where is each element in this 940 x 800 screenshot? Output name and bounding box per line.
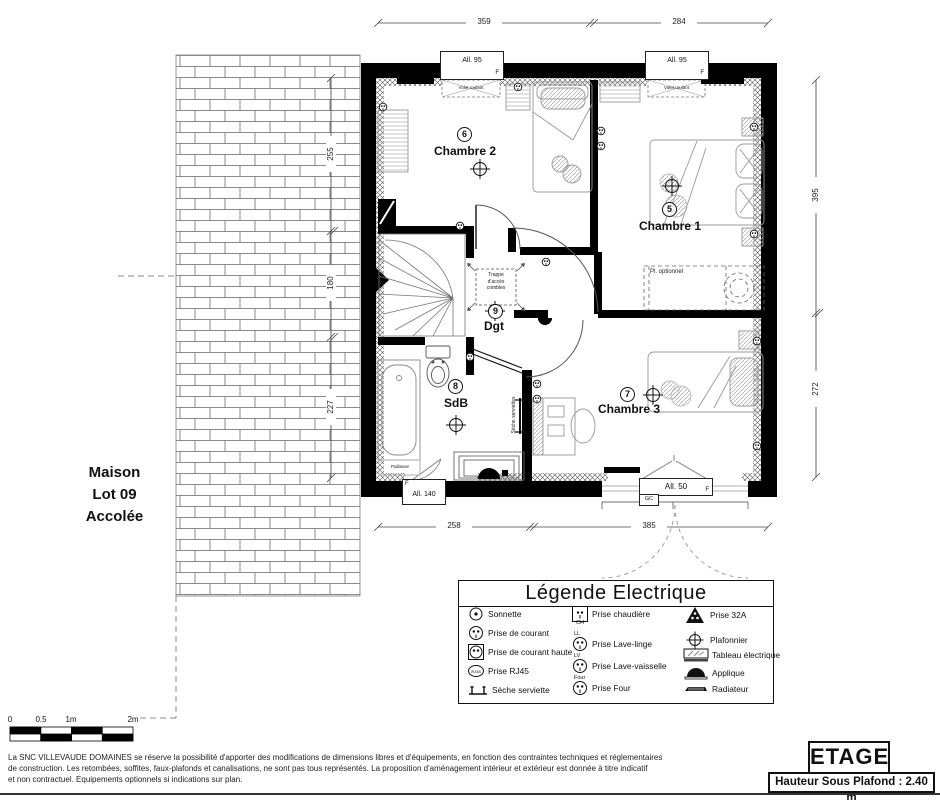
socket-icon (467, 624, 485, 642)
neighbor-line1: Maison (52, 462, 177, 484)
circuit-badge-dgt: 9 (488, 304, 503, 319)
dim-top-left: 359 (466, 17, 502, 27)
legend-item-chaudiere: CH Prise chaudière (571, 605, 650, 623)
legend-item-four: Four Prise Four (571, 679, 631, 697)
legend-item-prise-courant: Prise de courant (467, 624, 549, 642)
tableau-icon (683, 647, 709, 663)
towel-rail-icon (467, 681, 489, 699)
radiators (397, 78, 744, 473)
legend-label: Prise Lave-linge (592, 639, 652, 649)
socket-high-icon (467, 643, 485, 661)
dim-left-3: 227 (326, 389, 336, 425)
prise-32a-icon (683, 605, 707, 625)
legend-item-tableau: Tableau électrique (683, 647, 780, 663)
pl-optionnel-label: Pl. optionnel (650, 269, 710, 275)
legend-label: Sonnette (488, 609, 522, 619)
legend-item-sonnette: Sonnette (467, 605, 522, 623)
shutter-arcs (602, 505, 748, 578)
legend-electrique: Légende Electrique Sonnette Prise de cou… (458, 580, 774, 704)
seche-serviettes-label: Sèche serviettes (511, 385, 517, 445)
window-label-text: All. 95 (646, 52, 708, 65)
window-label-text: All. 50 (640, 479, 712, 491)
trappe-label: Trappe d'accès combles (476, 272, 516, 292)
paillasse-label: Paillasse (380, 464, 420, 469)
room-label-dgt: Dgt (469, 319, 519, 333)
floor-title: ETAGE (808, 741, 890, 774)
volet-roulant-label-right: Volet roulant (650, 85, 703, 90)
disclaimer-line2: de construction. Les retombées, soffites… (8, 763, 648, 774)
room-label-chambre3: Chambre 3 (584, 402, 674, 416)
dim-left-2: 180 (326, 265, 336, 301)
scale-tick-2m: 2m (123, 715, 143, 724)
window-f-mark: F (705, 487, 709, 493)
legend-label: Radiateur (712, 684, 748, 694)
legend-label: Plafonnier (710, 635, 748, 645)
legend-item-applique: Applique (683, 665, 745, 681)
window-gc-mark: GC (639, 494, 659, 506)
legend-label: Prise 32A (710, 610, 746, 620)
circuit-badge-chambre1: 5 (662, 202, 677, 217)
toilet (426, 346, 450, 387)
circuit-badge-chambre2: 6 (457, 127, 472, 142)
legend-item-seche-serviette: Sèche serviette (467, 681, 550, 699)
exterior-walls (361, 63, 777, 497)
legend-item-32a: Prise 32A (683, 605, 746, 625)
legend-label: Sèche serviette (492, 685, 550, 695)
scale-tick-1m: 1m (61, 715, 81, 724)
legend-label: Prise de courant haute (488, 647, 572, 657)
ceiling-height-label: Hauteur Sous Plafond : 2.40 m (768, 772, 935, 793)
legend-label: Prise RJ45 (488, 666, 529, 676)
staircase (379, 234, 465, 336)
radiateur-icon (683, 682, 709, 696)
legend-label: Prise Four (592, 683, 631, 693)
dim-left-1: 255 (326, 136, 336, 172)
vanity-unit (454, 452, 524, 480)
dim-right-2: 272 (811, 371, 821, 407)
dim-top-right: 284 (661, 17, 697, 27)
disclaimer-line3: et non contractuel. Equipements optionne… (8, 774, 242, 785)
window-f-mark: F (495, 70, 499, 76)
door-swings (409, 205, 707, 480)
circuit-badge-sdb: 8 (448, 379, 463, 394)
legend-label: Prise Lave-vaisselle (592, 661, 666, 671)
room-label-chambre2: Chambre 2 (420, 144, 510, 158)
neighbor-line2: Lot 09 (52, 484, 177, 506)
scale-tick-05: 0.5 (31, 715, 51, 724)
disclaimer-line1: La SNC VILLEVAUDE DOMAINES se réserve la… (8, 752, 662, 763)
legend-label: Prise de courant (488, 628, 549, 638)
legend-tag: LL (574, 629, 580, 639)
window-label-text: All. 95 (441, 52, 503, 65)
scale-tick-0: 0 (5, 715, 15, 724)
neighbor-line3: Accolée (52, 506, 177, 528)
legend-label: Tableau électrique (712, 650, 780, 660)
window-label-text: All. 140 (403, 480, 445, 499)
legend-tag: Four (574, 673, 585, 683)
legend-label: Prise chaudière (592, 609, 650, 619)
trappe-line3: combles (476, 285, 516, 292)
dim-right-1: 395 (811, 177, 821, 213)
rj45-icon: RJ45 (467, 662, 485, 680)
window-label-top-left: All. 95 F (440, 51, 504, 80)
window-label-bottom-left: All. 140 F (402, 479, 446, 505)
circuit-badge-chambre3: 7 (620, 387, 635, 402)
window-f-mark: F (700, 70, 704, 76)
bathtub (378, 360, 420, 475)
dim-bottom-left: 258 (436, 521, 472, 531)
chambre2-furniture (378, 82, 592, 192)
window-label-top-right: All. 95 F (645, 51, 709, 80)
neighbor-house-label: Maison Lot 09 Accolée (52, 462, 177, 528)
legend-item-rj45: RJ45 Prise RJ45 (467, 662, 529, 680)
wall-insulation-hatch (376, 78, 761, 481)
legend-title: Légende Electrique (459, 581, 773, 607)
legend-tag: LV (574, 651, 580, 661)
footer-divider (0, 793, 940, 795)
window-f-mark: F (405, 481, 409, 487)
sonnette-icon (467, 605, 485, 623)
volet-roulant-label-left: Volet roulant (444, 85, 498, 90)
plan-ceiling-lights (446, 159, 682, 435)
svg-text:RJ45: RJ45 (471, 669, 481, 674)
legend-tag: CH (576, 618, 584, 628)
legend-label: Applique (712, 668, 745, 678)
dim-bottom-right: 385 (631, 521, 667, 531)
legend-item-lave-vaisselle: LV Prise Lave-vaisselle (571, 657, 666, 675)
scale-bar (10, 727, 133, 741)
legend-item-lave-linge: LL Prise Lave-linge (571, 635, 652, 653)
room-label-chambre1: Chambre 1 (625, 219, 715, 233)
chambre3-furniture (533, 331, 763, 455)
applique-icon (683, 665, 709, 681)
room-label-sdb: SdB (431, 396, 481, 410)
legend-item-prise-haute: Prise de courant haute (467, 643, 572, 661)
legend-item-radiateur: Radiateur (683, 682, 748, 696)
floor-plan-page: 359 284 258 385 255 180 227 395 272 All.… (0, 0, 940, 800)
